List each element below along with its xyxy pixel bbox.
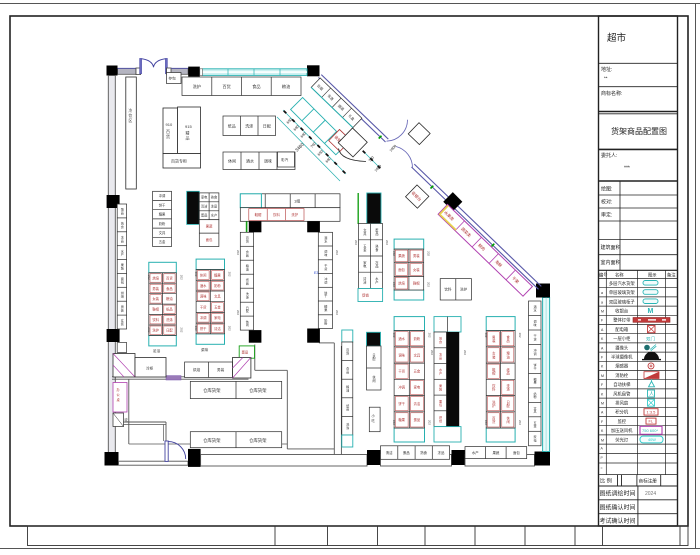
svg-text:五金: 五金 — [159, 239, 166, 244]
svg-text:装: 装 — [121, 307, 124, 312]
svg-text:仓库货架: 仓库货架 — [249, 437, 267, 444]
svg-text:食品: 食品 — [166, 286, 173, 291]
svg-text:品: 品 — [346, 370, 349, 374]
svg-text:休闲: 休闲 — [228, 157, 236, 163]
svg-text:油: 油 — [346, 388, 349, 393]
svg-text:M: M — [601, 402, 604, 406]
svg-text:水产: 水产 — [472, 450, 479, 455]
svg-text:冻品: 冻品 — [211, 204, 217, 209]
svg-text:202: 202 — [228, 326, 232, 331]
svg-text:洗护: 洗护 — [291, 212, 298, 217]
svg-text:校对:: 校对: — [601, 199, 612, 206]
svg-text:五金: 五金 — [214, 304, 221, 309]
svg-text:1组: 1组 — [294, 198, 300, 204]
svg-text:编号: 编号 — [599, 272, 608, 279]
svg-text:a: a — [601, 291, 603, 295]
svg-text:味: 味 — [534, 322, 537, 327]
svg-text:排风扇: 排风扇 — [615, 400, 628, 407]
svg-text:调: 调 — [324, 280, 327, 285]
svg-text:双层玻璃柜子: 双层玻璃柜子 — [609, 298, 635, 305]
svg-text:202: 202 — [194, 326, 198, 331]
svg-text:装: 装 — [121, 321, 124, 326]
svg-text:足浴: 足浴 — [153, 348, 161, 353]
svg-text:加压送风机: 加压送风机 — [611, 427, 633, 434]
svg-text:奶粉: 奶粉 — [159, 221, 166, 226]
svg-text:F: F — [601, 356, 603, 360]
svg-text:产: 产 — [375, 280, 378, 285]
svg-text:纸品: 纸品 — [228, 122, 236, 128]
svg-text:超市: 超市 — [607, 32, 627, 44]
svg-text:清洁: 清洁 — [414, 401, 421, 406]
svg-text:202: 202 — [335, 250, 339, 255]
svg-text:区: 区 — [129, 119, 133, 123]
svg-text:半球摄像机: 半球摄像机 — [611, 354, 633, 361]
svg-text:涤: 涤 — [346, 425, 349, 430]
svg-text:商标名称:: 商标名称: — [601, 90, 622, 97]
svg-text:=: = — [601, 466, 603, 470]
svg-text:202: 202 — [179, 275, 183, 280]
svg-text:品: 品 — [246, 281, 249, 285]
svg-text:饮料: 饮料 — [273, 212, 280, 217]
svg-text:M: M — [601, 438, 604, 442]
svg-text:202: 202 — [385, 240, 389, 245]
svg-text:202: 202 — [518, 420, 522, 425]
svg-text:比 例: 比 例 — [600, 477, 612, 485]
svg-text:室内面积: 室内面积 — [601, 259, 621, 266]
svg-text:清洁: 清洁 — [201, 204, 207, 209]
svg-text:洗护: 洗护 — [460, 287, 468, 292]
svg-text:家电: 家电 — [214, 315, 221, 320]
svg-text:味: 味 — [324, 252, 327, 257]
svg-text:果蔬: 果蔬 — [206, 224, 213, 229]
svg-text:家电: 家电 — [414, 385, 421, 390]
svg-text:**: ** — [604, 76, 608, 81]
svg-text:调味: 调味 — [264, 157, 272, 163]
svg-text:202: 202 — [392, 333, 396, 338]
svg-text:水产: 水产 — [211, 213, 217, 218]
svg-text:202: 202 — [518, 333, 522, 338]
svg-text:文具: 文具 — [214, 294, 221, 299]
svg-text:清洁: 清洁 — [386, 450, 393, 455]
svg-text:食品: 食品 — [252, 83, 260, 90]
svg-text:考试确认时间: 考试确认时间 — [600, 517, 636, 525]
svg-text:粮油: 粮油 — [282, 83, 290, 90]
svg-text:审定:: 审定: — [601, 212, 612, 219]
svg-text:金: 金 — [534, 423, 537, 428]
svg-text:仓库货架: 仓库货架 — [249, 387, 267, 394]
svg-text:冲调: 冲调 — [200, 315, 207, 320]
svg-text:202: 202 — [236, 250, 240, 255]
svg-text:配: 配 — [246, 308, 249, 313]
svg-text:男装: 男装 — [413, 253, 420, 258]
svg-text:监控: 监控 — [618, 418, 627, 425]
svg-text:单层玻璃货架: 单层玻璃货架 — [609, 289, 635, 296]
svg-text:饼干: 饼干 — [200, 326, 207, 331]
svg-text:菜味: 菜味 — [201, 347, 209, 352]
svg-text:纸品: 纸品 — [166, 307, 173, 312]
svg-text:委托人:: 委托人: — [601, 152, 617, 159]
svg-text:品: 品 — [121, 211, 124, 215]
svg-text:产: 产 — [121, 252, 124, 257]
svg-text:品: 品 — [121, 239, 124, 243]
svg-text:干: 干 — [534, 366, 537, 370]
svg-text:202: 202 — [430, 350, 434, 355]
svg-text:文具: 文具 — [414, 352, 421, 357]
svg-text:果蔬: 果蔬 — [398, 253, 405, 258]
svg-text:202: 202 — [392, 420, 396, 425]
svg-text:货架商品配置图: 货架商品配置图 — [611, 126, 667, 136]
svg-text:文具: 文具 — [159, 230, 166, 235]
svg-text:202: 202 — [179, 327, 183, 332]
svg-text:202: 202 — [427, 282, 431, 287]
svg-text:焙: 焙 — [439, 418, 442, 423]
svg-text:面包: 面包 — [513, 450, 520, 455]
svg-text:糖果: 糖果 — [159, 212, 166, 217]
svg-text:202: 202 — [147, 275, 151, 280]
svg-text:洗护: 洗护 — [152, 328, 159, 333]
svg-text:荧光灯: 荧光灯 — [615, 436, 629, 443]
svg-text:货: 货 — [324, 266, 327, 271]
svg-text:202: 202 — [484, 333, 488, 338]
svg-text:202: 202 — [194, 272, 198, 277]
svg-text:熟食: 熟食 — [211, 195, 218, 200]
svg-text:整体灯带: 整体灯带 — [613, 317, 631, 324]
svg-text:消防栓: 消防栓 — [615, 372, 629, 379]
svg-text:货: 货 — [534, 336, 537, 341]
svg-text:熟食: 熟食 — [420, 450, 427, 455]
svg-text:地址:: 地址: — [601, 66, 612, 73]
svg-text:910: 910 — [166, 122, 173, 127]
svg-text:烘焙: 烘焙 — [193, 367, 201, 372]
svg-text:干: 干 — [324, 294, 327, 298]
svg-text:积分机: 积分机 — [615, 409, 629, 416]
svg-text:202: 202 — [392, 251, 396, 256]
svg-text:面包: 面包 — [206, 237, 213, 242]
svg-text:百货: 百货 — [166, 275, 173, 280]
svg-text:蛋品: 蛋品 — [242, 350, 249, 355]
svg-text:双门: 双门 — [646, 335, 655, 342]
svg-text:蛋品: 蛋品 — [414, 417, 421, 422]
svg-text:货: 货 — [166, 133, 170, 139]
svg-text:烟感器: 烟感器 — [615, 363, 629, 370]
svg-text:建筑面积: 建筑面积 — [601, 244, 621, 251]
svg-text:品: 品 — [186, 136, 190, 141]
svg-text:品: 品 — [375, 232, 378, 236]
svg-text:酒水: 酒水 — [200, 283, 207, 288]
svg-text:洗涤: 洗涤 — [245, 122, 253, 128]
svg-text:果蔬: 果蔬 — [493, 450, 500, 455]
svg-text:存包: 存包 — [169, 76, 177, 81]
svg-text:FL: FL — [649, 420, 653, 424]
svg-text:洗护: 洗护 — [193, 83, 201, 90]
svg-text:具: 具 — [534, 409, 537, 414]
svg-text:包: 包 — [439, 402, 442, 407]
svg-text:202: 202 — [427, 251, 431, 256]
svg-text:糖果: 糖果 — [398, 417, 405, 422]
svg-text:品: 品 — [346, 407, 349, 411]
svg-text:货: 货 — [346, 350, 349, 355]
svg-text:人: 人 — [649, 392, 654, 398]
svg-text:酒水: 酒水 — [246, 157, 254, 163]
svg-text:粮油: 粮油 — [166, 296, 173, 301]
svg-text:彩汽: 彩汽 — [281, 157, 289, 162]
svg-text:图纸确认时间: 图纸确认时间 — [600, 504, 636, 512]
svg-text:202: 202 — [354, 240, 358, 245]
svg-text:202: 202 — [236, 310, 240, 315]
svg-text:冷柜: 冷柜 — [146, 366, 154, 371]
svg-text:调味: 调味 — [200, 294, 207, 299]
svg-text:焙: 焙 — [121, 293, 124, 298]
svg-text:自动扶梯: 自动扶梯 — [613, 381, 631, 388]
svg-text:干货: 干货 — [200, 304, 207, 309]
svg-text:202: 202 — [484, 420, 488, 425]
svg-text:产: 产 — [439, 371, 442, 376]
svg-text:915: 915 — [185, 124, 192, 129]
svg-text:冲调: 冲调 — [159, 193, 166, 198]
svg-text:202: 202 — [392, 282, 396, 287]
svg-text:奶粉: 奶粉 — [414, 336, 421, 341]
svg-text:绘图:: 绘图: — [601, 186, 612, 193]
svg-text:酒水: 酒水 — [398, 336, 405, 341]
svg-text:饼干: 饼干 — [398, 401, 405, 406]
svg-text:女装: 女装 — [413, 267, 420, 272]
svg-text:202: 202 — [335, 310, 339, 315]
svg-text:40W: 40W — [648, 438, 656, 442]
svg-text:冷: 冷 — [129, 108, 133, 113]
svg-text:烘焙: 烘焙 — [398, 281, 405, 286]
svg-text:名称: 名称 — [615, 272, 624, 279]
svg-text:饮料: 饮料 — [152, 317, 159, 322]
svg-text:日配: 日配 — [263, 123, 271, 128]
svg-text:烘焙: 烘焙 — [152, 275, 159, 280]
svg-text:货: 货 — [246, 238, 249, 243]
svg-text:蛋品: 蛋品 — [201, 213, 207, 218]
svg-text:仓库货架: 仓库货架 — [203, 437, 221, 444]
svg-text:1:3.5: 1:3.5 — [647, 410, 657, 415]
svg-text:F: F — [601, 383, 603, 387]
svg-text:配电箱: 配电箱 — [615, 326, 629, 333]
svg-text:涤: 涤 — [246, 294, 249, 299]
svg-text:M: M — [601, 310, 604, 314]
svg-text:洗涤: 洗涤 — [166, 317, 173, 322]
svg-text:风机盘管: 风机盘管 — [613, 390, 631, 397]
svg-text:202: 202 — [428, 420, 432, 425]
svg-text:饮: 饮 — [129, 113, 133, 118]
svg-text:E3: E3 — [314, 271, 318, 275]
svg-text:冲调: 冲调 — [398, 385, 405, 390]
svg-text:202: 202 — [228, 272, 232, 277]
svg-text:F: F — [601, 319, 603, 323]
svg-text:摄像头: 摄像头 — [615, 344, 629, 351]
svg-text:清洁: 清洁 — [214, 326, 221, 331]
svg-text:调味: 调味 — [398, 352, 405, 357]
svg-text:促销: 促销 — [362, 293, 369, 298]
svg-text:750 600*: 750 600* — [642, 428, 658, 433]
svg-text:电: 电 — [534, 438, 537, 443]
svg-text:干货: 干货 — [398, 369, 405, 374]
svg-text:日配: 日配 — [166, 328, 173, 333]
svg-text:品: 品 — [439, 356, 442, 360]
svg-text:油: 油 — [246, 266, 249, 271]
svg-text:a: a — [601, 300, 603, 304]
svg-text:饼干: 饼干 — [159, 202, 166, 207]
svg-text:饮料: 饮料 — [444, 287, 452, 292]
svg-text:百货专柜: 百货专柜 — [171, 158, 187, 164]
svg-text:品: 品 — [375, 264, 378, 268]
svg-text:蛋品: 蛋品 — [403, 450, 410, 455]
svg-text:鞋帽: 鞋帽 — [413, 281, 420, 286]
svg-text:百货: 百货 — [222, 83, 230, 90]
svg-text:家电: 家电 — [201, 195, 208, 200]
svg-text:图纸调绘时间: 图纸调绘时间 — [600, 490, 636, 498]
svg-text:果: 果 — [324, 307, 327, 312]
svg-text:面包: 面包 — [398, 267, 405, 272]
svg-text:收银台: 收银台 — [615, 308, 628, 315]
svg-text:一层小柜: 一层小柜 — [613, 335, 631, 342]
svg-text:糖果: 糖果 — [214, 272, 221, 277]
svg-text:M: M — [601, 374, 604, 378]
svg-text:2024: 2024 — [645, 491, 656, 497]
svg-text:女装: 女装 — [152, 296, 159, 301]
svg-text:闲: 闲 — [372, 378, 375, 383]
svg-text:调: 调 — [534, 351, 537, 356]
svg-text:鞋帽: 鞋帽 — [152, 307, 159, 312]
svg-text:洁: 洁 — [363, 280, 366, 285]
svg-text:包: 包 — [121, 280, 124, 285]
svg-text:202: 202 — [428, 333, 432, 338]
svg-text:202: 202 — [147, 327, 151, 332]
svg-text:男装: 男装 — [152, 286, 159, 291]
svg-text:男装: 男装 — [217, 367, 225, 372]
svg-text:202: 202 — [463, 350, 467, 355]
svg-text:五金: 五金 — [414, 369, 421, 374]
svg-text:多层汽水货架: 多层汽水货架 — [609, 280, 635, 287]
svg-text:果: 果 — [534, 380, 537, 385]
svg-text:仓库货架: 仓库货架 — [203, 387, 221, 394]
svg-text:鞋帽: 鞋帽 — [255, 212, 262, 217]
svg-text:冻品: 冻品 — [438, 450, 445, 455]
svg-text:奶粉: 奶粉 — [214, 283, 221, 288]
svg-text:闲: 闲 — [246, 322, 249, 327]
svg-text:商标注册: 商标注册 — [639, 478, 658, 485]
svg-text:F: F — [601, 420, 603, 424]
svg-text:粉: 粉 — [324, 321, 327, 326]
svg-text:粉: 粉 — [534, 394, 537, 399]
svg-text:***: *** — [624, 166, 630, 172]
svg-text:备注: 备注 — [667, 272, 676, 279]
svg-text:品: 品 — [246, 253, 249, 257]
svg-text:休闲: 休闲 — [200, 272, 207, 277]
svg-text:M: M — [648, 308, 654, 315]
